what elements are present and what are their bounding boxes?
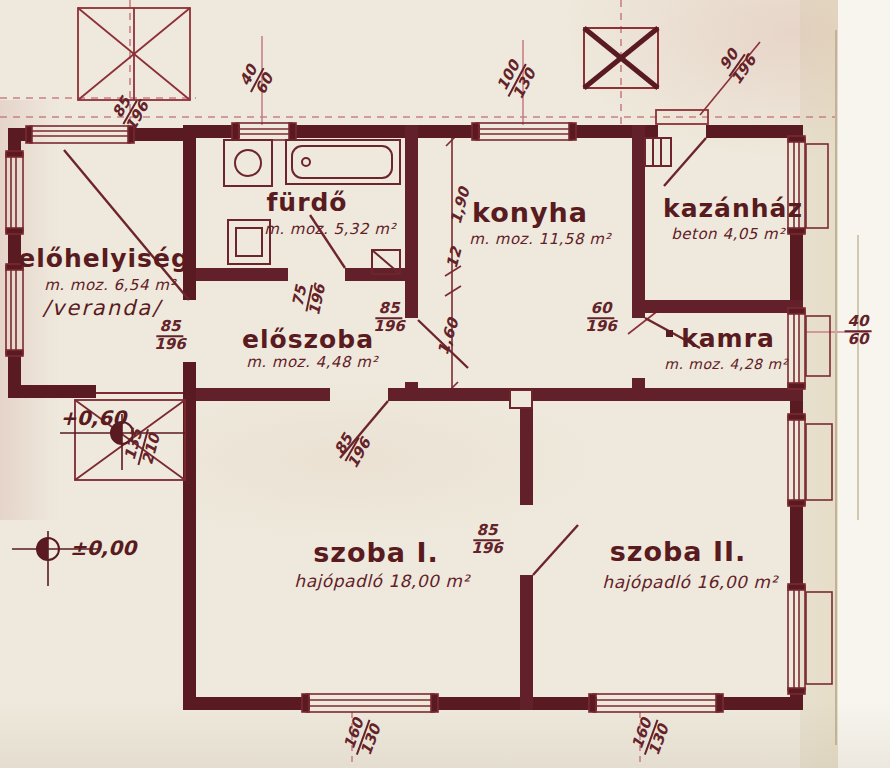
- dim-szoba-divider-door: 85196: [468, 523, 505, 557]
- room-area-elohelyiseg: m. moz. 6,54 m²: [44, 275, 176, 294]
- room-area-eloszoba: m. moz. 4,48 m²: [246, 352, 378, 371]
- level-veranda: +0,60: [60, 406, 126, 430]
- room-label-eloszoba: előszoba: [242, 325, 374, 354]
- room-label-szoba1: szoba I.: [313, 537, 439, 568]
- dim-kamra-window: 4060: [845, 314, 872, 348]
- room-area-furdo: m. moz. 5,32 m²: [264, 219, 396, 238]
- dim-veranda-left-window: 85196: [151, 319, 188, 353]
- water-heater: [224, 140, 272, 186]
- room-area-kazanhaz: beton 4,05 m²: [671, 224, 784, 243]
- flue: [645, 138, 671, 166]
- doors: [64, 138, 706, 575]
- room-label-furdo: fürdő: [266, 188, 347, 217]
- chimney: [510, 390, 532, 408]
- room-area-szoba1: hajópadló 18,00 m²: [294, 571, 469, 591]
- room-label-szoba2: szoba II.: [610, 536, 747, 567]
- room-note-veranda: /veranda/: [43, 296, 162, 320]
- room-area-konyha: m. moz. 11,58 m²: [469, 229, 611, 248]
- room-label-kamra: kamra: [681, 324, 775, 353]
- room-area-szoba2: hajópadló 16,00 m²: [602, 572, 777, 592]
- kamra-dot: [666, 330, 673, 337]
- level-ground: ±0,00: [70, 536, 136, 560]
- room-area-kamra: m. moz. 4,28 m²: [664, 354, 787, 373]
- room-label-elohelyiseg: előhelyiség: [18, 244, 190, 273]
- floor-plan-scan: előhelyiség m. moz. 6,54 m² /veranda/ fü…: [0, 0, 890, 768]
- room-label-konyha: konyha: [472, 197, 588, 228]
- room-label-kazanhaz: kazánház: [663, 194, 803, 223]
- dim-kamra-door: 60196: [582, 301, 619, 335]
- dim-eloszoba-konyha-door: 85196: [370, 301, 407, 335]
- paper-edge-lines: [836, 30, 858, 745]
- roof-gables: [78, 8, 708, 124]
